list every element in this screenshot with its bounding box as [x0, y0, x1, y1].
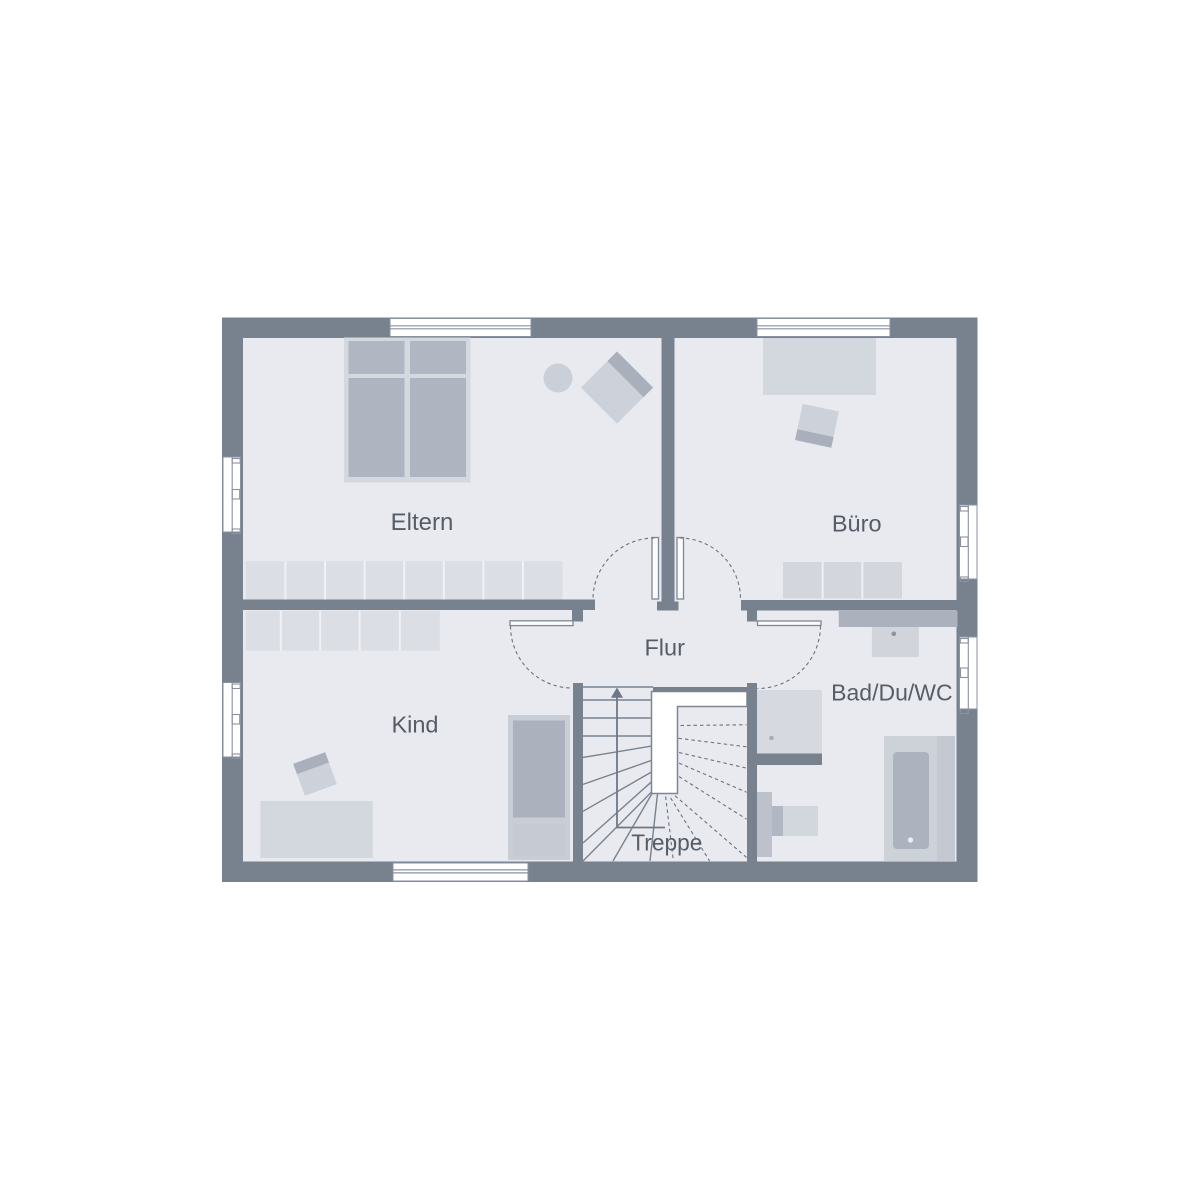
svg-text:Eltern: Eltern	[391, 509, 454, 536]
svg-text:Kind: Kind	[391, 712, 438, 738]
svg-text:Bad/Du/WC: Bad/Du/WC	[831, 680, 952, 706]
svg-text:Flur: Flur	[644, 634, 685, 660]
svg-text:Büro: Büro	[832, 511, 882, 537]
svg-text:Treppe: Treppe	[631, 829, 702, 855]
